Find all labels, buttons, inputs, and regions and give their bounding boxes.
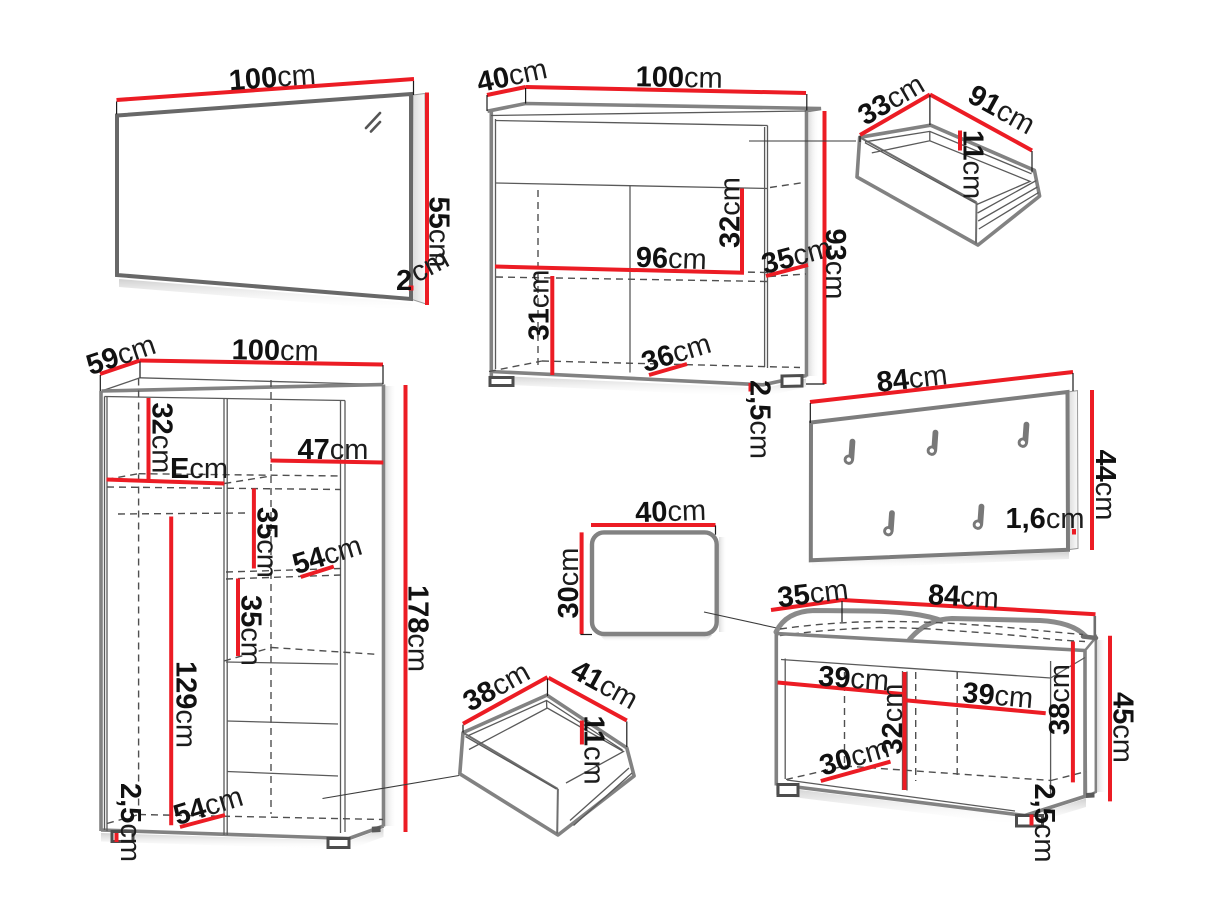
svg-text:35cm: 35cm	[235, 595, 267, 666]
svg-text:100cm: 100cm	[231, 334, 319, 368]
svg-text:47cm: 47cm	[298, 434, 369, 466]
svg-text:2,5cm: 2,5cm	[114, 783, 146, 862]
svg-text:30cm: 30cm	[553, 548, 585, 619]
svg-text:44cm: 44cm	[1089, 450, 1121, 521]
svg-text:129cm: 129cm	[170, 661, 202, 748]
svg-text:93cm: 93cm	[819, 229, 851, 300]
svg-text:96cm: 96cm	[635, 242, 707, 276]
svg-text:38cm: 38cm	[1044, 664, 1076, 735]
svg-text:Ecm: Ecm	[170, 453, 228, 485]
svg-text:35cm: 35cm	[251, 507, 283, 578]
svg-text:1,6cm: 1,6cm	[1006, 503, 1085, 535]
svg-text:178cm: 178cm	[402, 585, 434, 672]
svg-text:11cm: 11cm	[957, 130, 989, 199]
svg-text:84cm: 84cm	[927, 579, 1000, 615]
svg-text:32cm: 32cm	[715, 177, 747, 248]
svg-text:40cm: 40cm	[635, 495, 707, 529]
svg-text:39cm: 39cm	[961, 677, 1034, 715]
svg-text:100cm: 100cm	[635, 61, 723, 95]
svg-text:2,5cm: 2,5cm	[1028, 784, 1060, 863]
svg-text:100cm: 100cm	[228, 59, 317, 97]
svg-text:31cm: 31cm	[524, 270, 556, 341]
svg-text:45cm: 45cm	[1107, 692, 1139, 763]
svg-text:11cm: 11cm	[578, 715, 610, 784]
svg-text:2,5cm: 2,5cm	[744, 380, 776, 459]
